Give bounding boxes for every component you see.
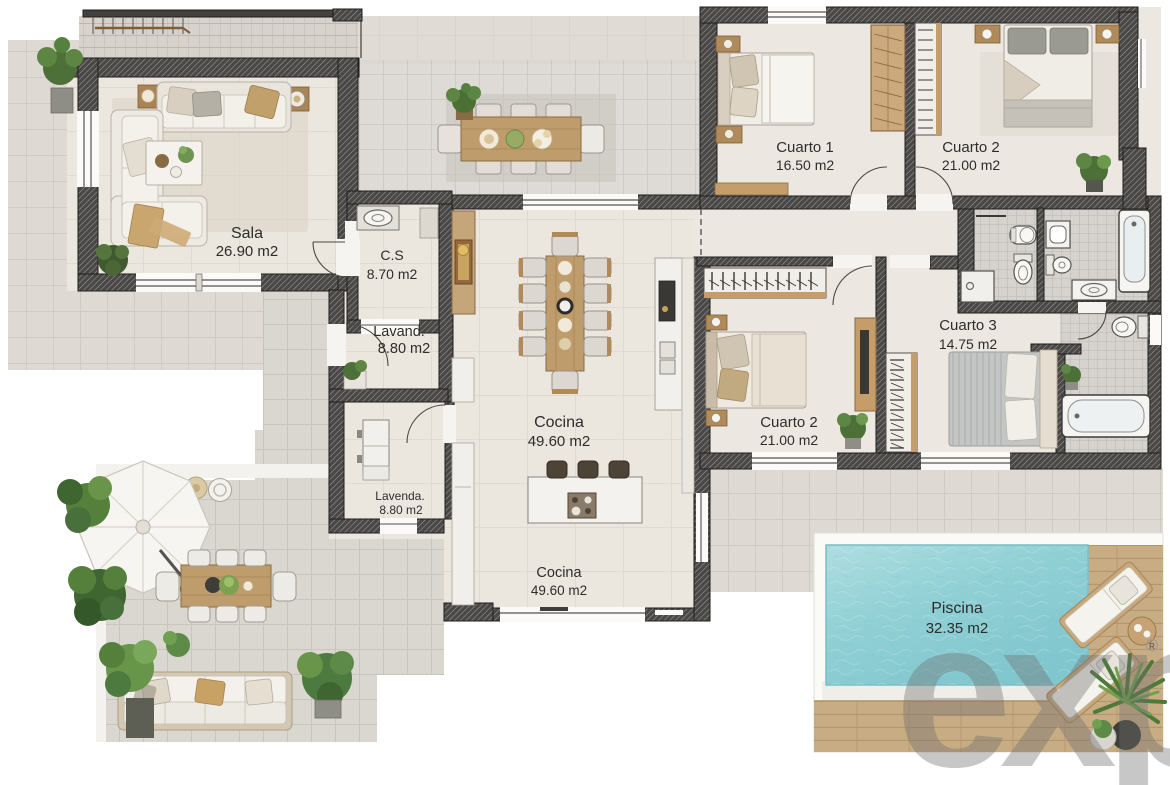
svg-text:R: R: [1149, 642, 1155, 651]
svg-text:Sala: Sala: [231, 225, 263, 242]
svg-text:14.75 m2: 14.75 m2: [939, 336, 998, 352]
svg-text:Cuarto 2: Cuarto 2: [760, 414, 818, 431]
svg-text:21.00 m2: 21.00 m2: [942, 157, 1001, 173]
svg-text:8.80 m2: 8.80 m2: [378, 341, 430, 357]
svg-text:Cuarto 1: Cuarto 1: [776, 139, 834, 156]
svg-text:exp: exp: [895, 576, 1170, 785]
svg-text:21.00 m2: 21.00 m2: [760, 432, 819, 448]
svg-text:26.90 m2: 26.90 m2: [216, 243, 279, 260]
svg-text:Cuarto 2: Cuarto 2: [942, 139, 1000, 156]
svg-text:Cocina: Cocina: [534, 414, 584, 431]
svg-text:Lavenda.: Lavenda.: [375, 489, 424, 503]
svg-text:49.60 m2: 49.60 m2: [528, 433, 591, 450]
svg-text:Cocina: Cocina: [536, 565, 582, 581]
svg-text:Lavand.: Lavand.: [373, 324, 425, 340]
svg-text:8.80 m2: 8.80 m2: [379, 503, 423, 517]
svg-text:Cuarto 3: Cuarto 3: [939, 317, 997, 334]
svg-text:8.70 m2: 8.70 m2: [367, 266, 418, 282]
svg-text:16.50 m2: 16.50 m2: [776, 157, 835, 173]
svg-text:49.60 m2: 49.60 m2: [531, 583, 587, 598]
svg-text:C.S: C.S: [380, 247, 403, 263]
